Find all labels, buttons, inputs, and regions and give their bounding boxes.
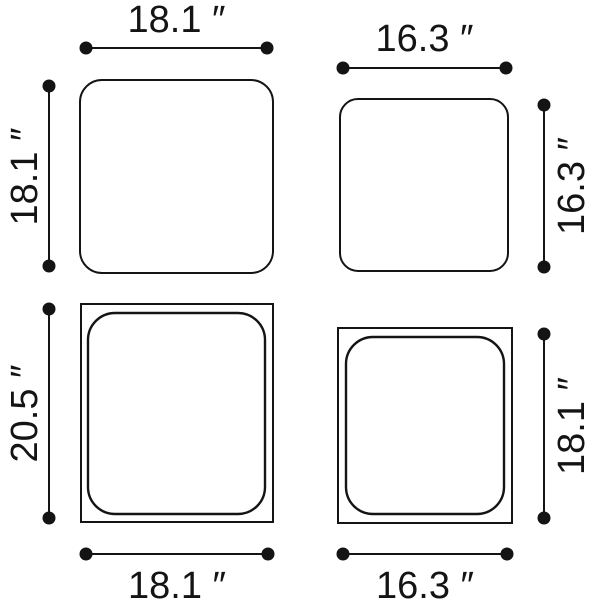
- width-dimension-top-right: 16.3 ″: [337, 18, 513, 75]
- panel-top-left: 18.1 ″ 18.1 ″: [4, 0, 274, 273]
- dimension-endpoint-dot: [43, 80, 56, 93]
- shape-outline-outer: [81, 304, 273, 522]
- width-dimension-label: 16.3 ″: [376, 18, 474, 60]
- width-dimension-label: 18.1 ″: [128, 0, 226, 41]
- height-dimension-label: 18.1 ″: [551, 377, 593, 475]
- dimension-endpoint-dot: [538, 261, 551, 274]
- dimension-diagram: 18.1 ″ 18.1 ″ 16.3 ″ 16: [0, 0, 600, 606]
- panel-bottom-left: 20.5 ″ 18.1 ″: [4, 303, 275, 606]
- dimension-diagram-page: 18.1 ″ 18.1 ″ 16.3 ″ 16: [0, 0, 600, 606]
- height-dimension-top-right: 16.3 ″: [538, 99, 594, 274]
- dimension-endpoint-dot: [43, 512, 56, 525]
- dimension-endpoint-dot: [538, 99, 551, 112]
- dimension-endpoint-dot: [43, 260, 56, 273]
- dimension-endpoint-dot: [538, 512, 551, 525]
- shape-outline: [80, 80, 273, 273]
- width-dimension-bottom-right: 16.3 ″: [337, 548, 514, 606]
- dimension-endpoint-dot: [43, 303, 56, 316]
- dimension-endpoint-dot: [80, 548, 93, 561]
- panel-top-right: 16.3 ″ 16.3 ″: [337, 18, 594, 274]
- height-dimension-bottom-left: 20.5 ″: [4, 303, 56, 525]
- dimension-endpoint-dot: [337, 548, 350, 561]
- panel-bottom-right: 18.1 ″ 16.3 ″: [337, 328, 594, 606]
- shape-outline: [340, 99, 508, 271]
- dimension-endpoint-dot: [337, 62, 350, 75]
- dimension-endpoint-dot: [80, 42, 93, 55]
- height-dimension-label: 16.3 ″: [551, 137, 593, 235]
- width-dimension-label: 16.3 ″: [376, 565, 474, 606]
- dimension-endpoint-dot: [538, 328, 551, 341]
- height-dimension-label: 18.1 ″: [4, 128, 46, 226]
- width-dimension-bottom-left: 18.1 ″: [80, 548, 275, 606]
- width-dimension-top-left: 18.1 ″: [80, 0, 274, 55]
- height-dimension-top-left: 18.1 ″: [4, 80, 56, 273]
- dimension-endpoint-dot: [262, 548, 275, 561]
- shape-outline-inner: [346, 337, 504, 514]
- width-dimension-label: 18.1 ″: [128, 565, 226, 606]
- height-dimension-bottom-right: 18.1 ″: [538, 328, 594, 525]
- dimension-endpoint-dot: [261, 42, 274, 55]
- dimension-endpoint-dot: [501, 548, 514, 561]
- dimension-endpoint-dot: [500, 62, 513, 75]
- shape-outline-outer: [338, 328, 512, 523]
- height-dimension-label: 20.5 ″: [4, 365, 46, 463]
- shape-outline-inner: [88, 313, 265, 514]
